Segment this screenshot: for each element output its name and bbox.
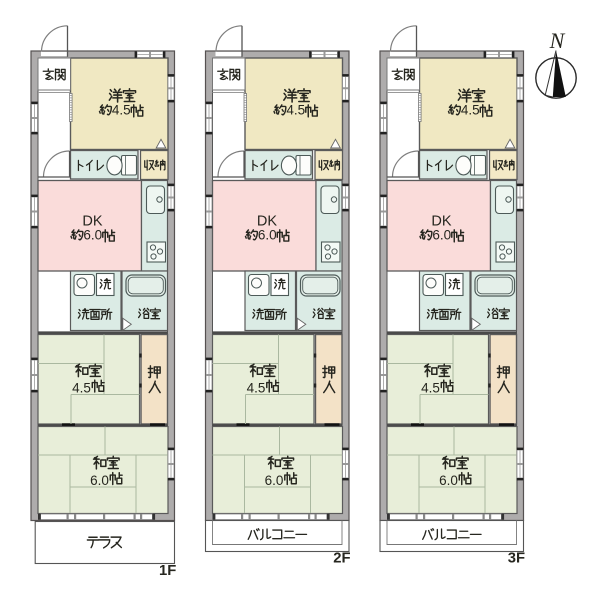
svg-text:1F: 1F bbox=[159, 563, 176, 579]
svg-text:3F: 3F bbox=[508, 551, 525, 567]
svg-text:2F: 2F bbox=[333, 551, 350, 567]
svg-text:N: N bbox=[549, 28, 566, 53]
